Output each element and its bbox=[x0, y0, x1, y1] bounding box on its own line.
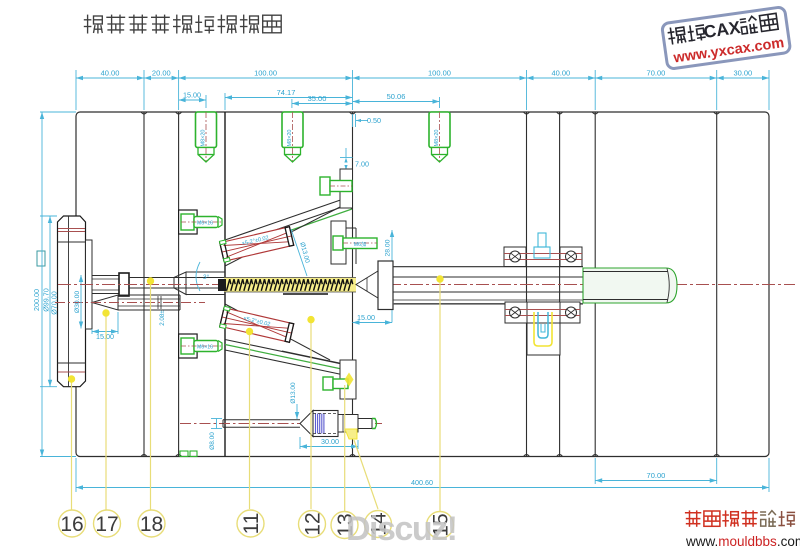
svg-text:15.00: 15.00 bbox=[357, 313, 375, 322]
svg-text:2.08±: 2.08± bbox=[159, 310, 166, 326]
svg-text:20.00: 20.00 bbox=[152, 69, 171, 78]
svg-text:3°: 3° bbox=[203, 273, 210, 281]
svg-text:15.00: 15.00 bbox=[183, 91, 201, 100]
svg-text:30.00: 30.00 bbox=[321, 437, 339, 446]
svg-text:M6×16: M6×16 bbox=[197, 345, 213, 351]
svg-text:16: 16 bbox=[60, 513, 83, 536]
svg-text:28.00: 28.00 bbox=[385, 239, 392, 256]
svg-text:www.mouldbbs.com: www.mouldbbs.com bbox=[685, 534, 800, 549]
svg-text:400.60: 400.60 bbox=[411, 478, 433, 487]
svg-text:Ø30.00: Ø30.00 bbox=[74, 291, 81, 314]
svg-text:100.00: 100.00 bbox=[428, 69, 451, 78]
svg-text:40.00: 40.00 bbox=[551, 69, 570, 78]
svg-text:M8×20: M8×20 bbox=[287, 130, 293, 147]
svg-text:35.00: 35.00 bbox=[308, 94, 327, 103]
svg-text:Ø70.00: Ø70.00 bbox=[50, 291, 59, 315]
svg-text:Discuz!: Discuz! bbox=[346, 510, 456, 548]
svg-text:15.00: 15.00 bbox=[96, 332, 114, 341]
svg-text:M6×16: M6×16 bbox=[197, 221, 213, 227]
svg-text:50.06: 50.06 bbox=[387, 92, 406, 101]
svg-text:11: 11 bbox=[240, 513, 263, 535]
svg-text:M8×20: M8×20 bbox=[201, 130, 207, 147]
svg-text:0.50: 0.50 bbox=[367, 116, 381, 125]
svg-text:7.00: 7.00 bbox=[355, 160, 369, 169]
svg-text:Ø8.00: Ø8.00 bbox=[209, 432, 216, 450]
svg-text:M6加: M6加 bbox=[354, 240, 366, 248]
svg-text:70.00: 70.00 bbox=[647, 471, 666, 480]
svg-text:12: 12 bbox=[302, 512, 325, 535]
svg-text:M8×20: M8×20 bbox=[434, 130, 440, 147]
svg-text:18: 18 bbox=[140, 513, 163, 536]
svg-text:17: 17 bbox=[95, 513, 118, 536]
svg-text:30.00: 30.00 bbox=[733, 69, 752, 78]
svg-text:40.00: 40.00 bbox=[101, 69, 120, 78]
svg-text:200.00: 200.00 bbox=[32, 289, 41, 311]
svg-text:Ø13.00: Ø13.00 bbox=[290, 382, 297, 404]
svg-text:100.00: 100.00 bbox=[254, 69, 277, 78]
svg-text:74.17: 74.17 bbox=[277, 88, 296, 97]
svg-text:70.00: 70.00 bbox=[647, 69, 666, 78]
